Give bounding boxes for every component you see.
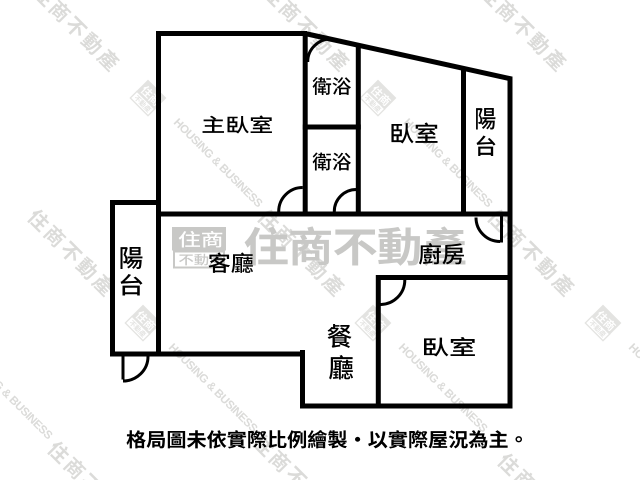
- svg-text:HOUSING & BUSINESS: HOUSING & BUSINESS: [396, 342, 490, 436]
- svg-text:HOUSING & BUSINESS: HOUSING & BUSINESS: [171, 117, 265, 211]
- svg-text:HOUSING & BUSINESS: HOUSING & BUSINESS: [626, 342, 640, 436]
- svg-text:HOUSING & BUSINESS: HOUSING & BUSINESS: [0, 349, 55, 443]
- svg-text:HOUSING & BUSINESS: HOUSING & BUSINESS: [401, 117, 495, 211]
